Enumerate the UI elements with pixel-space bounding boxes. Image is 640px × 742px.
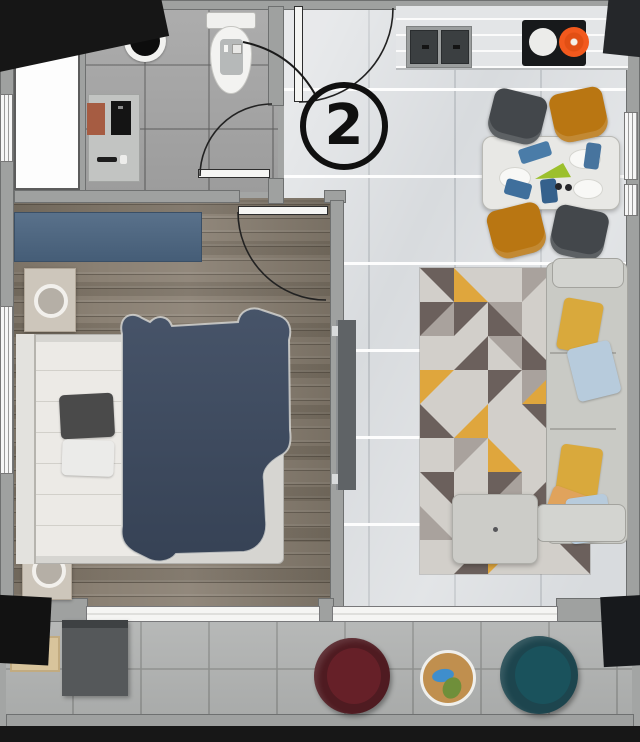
kitchen-sink-right (441, 30, 469, 64)
armchair-seat (515, 646, 571, 704)
entry-door (294, 6, 303, 102)
sofa-armrest-top (552, 258, 624, 288)
table-dot (565, 184, 572, 191)
wall-bathroom-right-lower (268, 178, 284, 204)
vanity-towel (87, 103, 105, 135)
rug-tile (420, 268, 454, 302)
sliding-door-living (332, 606, 558, 622)
wall-right (626, 0, 640, 624)
window-left-upper (0, 94, 13, 162)
corner-marker (0, 595, 52, 666)
burner-orange (559, 27, 589, 57)
unit-number-callout: 2 (300, 82, 388, 170)
rug-tile (420, 540, 454, 574)
rug-tile (420, 370, 454, 404)
napkin-blue (540, 178, 558, 204)
rug-tile (488, 302, 522, 336)
rug-tile (420, 404, 454, 438)
bottom-edge-strip (0, 726, 640, 742)
wardrobe (14, 212, 202, 262)
rug-tile (454, 336, 488, 370)
rug-tile (454, 268, 488, 302)
window-right-upper (624, 112, 638, 180)
plate (573, 179, 603, 199)
kitchen-sink-left (410, 30, 438, 64)
window-right-lower (624, 184, 638, 216)
burner-white (529, 28, 557, 56)
table-dot (555, 183, 562, 190)
coffee-table (452, 494, 538, 564)
rug-tile (454, 438, 488, 472)
pillow-dark (59, 393, 115, 440)
rug-tile (556, 540, 590, 574)
rug-tile (454, 370, 488, 404)
nightstand (24, 268, 76, 332)
dining-table (482, 136, 620, 210)
bed-headboard (16, 334, 36, 564)
bathroom-door (198, 169, 270, 178)
balcony-storage-box (62, 620, 128, 696)
table-leaf-decor (535, 163, 571, 179)
rug-tile (488, 336, 522, 370)
armchair-seat (327, 648, 381, 704)
wall-bedroom-top (14, 190, 240, 203)
window-left-bedroom (0, 306, 13, 474)
rug-tile (420, 472, 454, 506)
balcony-side-table (420, 650, 476, 706)
pillow-white (169, 386, 223, 424)
corner-marker (600, 595, 640, 667)
floor-plan: 2 (0, 0, 640, 742)
bathroom-vanity (88, 94, 140, 182)
rug-tile (420, 506, 454, 540)
toilet-flush-dot (224, 45, 228, 52)
rug-tile (454, 302, 488, 336)
pillow-white (61, 439, 114, 477)
wall-tv (336, 320, 356, 490)
rug-tile (488, 268, 522, 302)
toilet-seat (220, 39, 243, 75)
vanity-soap (120, 155, 127, 164)
toilet-flush-button (232, 44, 242, 54)
vanity-handle (97, 157, 117, 162)
rug-tile (488, 370, 522, 404)
vanity-appliance (111, 101, 131, 135)
rug-tile (488, 438, 522, 472)
rug-tile (488, 404, 522, 438)
kitchen-sink-unit (406, 26, 472, 68)
rug-tile (454, 404, 488, 438)
wall-bathroom-right-upper (268, 6, 284, 106)
cooktop (522, 20, 586, 66)
corner-marker (603, 0, 640, 58)
balcony-armchair-teal (500, 636, 578, 714)
sofa-armrest-bottom (536, 504, 626, 542)
bedroom-door (238, 206, 328, 215)
rug-tile (420, 302, 454, 336)
rug-tile (420, 336, 454, 370)
balcony-armchair-maroon (314, 638, 390, 714)
sofa-seam (550, 428, 616, 430)
lamp-icon (34, 284, 68, 318)
unit-number: 2 (325, 98, 364, 154)
rug-tile (420, 438, 454, 472)
napkin-blue (583, 142, 601, 170)
